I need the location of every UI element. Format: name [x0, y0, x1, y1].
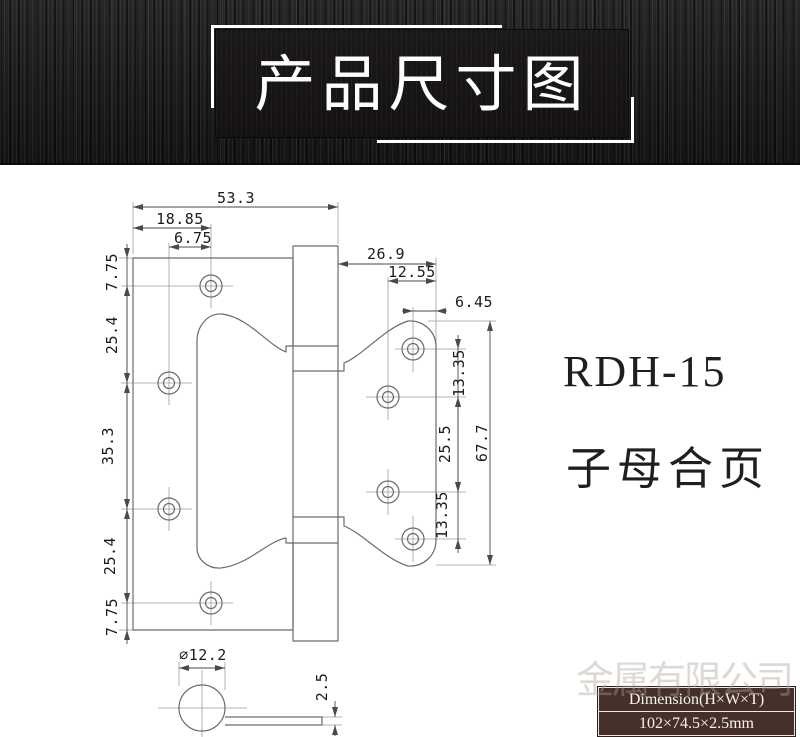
product-model: RDH-15	[563, 346, 727, 397]
dim-hole-col1-offset: 18.85	[156, 210, 204, 228]
product-dimension-page: 产品尺寸图	[0, 0, 800, 737]
dim-left-pitch1: 25.4	[103, 316, 121, 354]
dim-knuckle-diameter: ∅12.2	[179, 646, 227, 664]
dim-small-hole-col1-offset: 6.45	[455, 293, 493, 311]
dim-small-leaf-width: 26.9	[367, 245, 405, 263]
extension-and-center-lines	[119, 202, 496, 737]
dim-hole-col-gap: 6.75	[174, 229, 212, 247]
dim-leaf-thickness: 2.5	[313, 673, 331, 702]
corner-bracket-bottom-right	[377, 97, 634, 143]
corner-bracket-top-left	[211, 25, 502, 108]
dim-left-edge-top: 7.75	[103, 253, 121, 291]
dim-left-pitch3: 25.4	[101, 537, 119, 575]
dim-right-pitch2: 25.5	[436, 425, 454, 463]
hinge-knuckle	[293, 246, 338, 641]
dim-small-leaf-height: 67.7	[473, 424, 491, 462]
dimension-labels: 53.3 18.85 6.75 26.9 12.55 6.45 7.75 25.…	[99, 189, 493, 701]
screw-holes	[158, 275, 424, 614]
spec-table-header: Dimension(H×W×T)	[599, 688, 794, 712]
dim-right-pitch3: 13.35	[433, 491, 451, 539]
spec-table-value: 102×74.5×2.5mm	[599, 712, 794, 735]
spec-table: Dimension(H×W×T) 102×74.5×2.5mm	[598, 687, 795, 736]
dim-overall-width: 53.3	[217, 189, 255, 207]
dim-left-edge-bottom: 7.75	[103, 598, 121, 636]
leaf-side-view	[225, 717, 322, 725]
mother-leaf-outline	[133, 258, 293, 630]
product-name: 子母合页	[566, 432, 770, 497]
dim-small-hole-col2-offset: 12.55	[388, 263, 436, 281]
banner: 产品尺寸图	[0, 0, 800, 165]
dim-left-pitch2: 35.3	[99, 427, 117, 465]
dim-right-pitch1: 13.35	[450, 349, 468, 397]
son-leaf-outline	[338, 321, 436, 566]
